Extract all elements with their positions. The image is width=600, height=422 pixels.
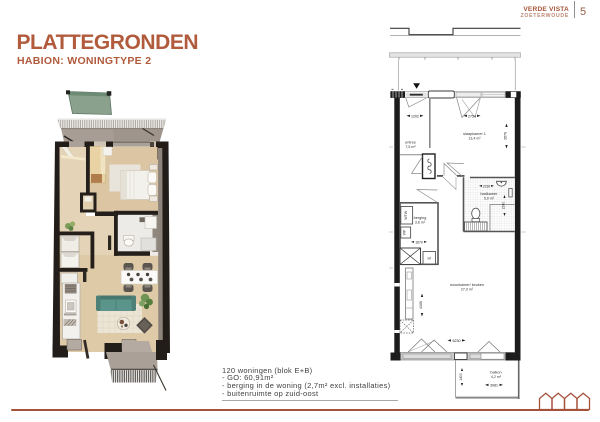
svg-text:WP: WP <box>403 229 407 235</box>
svg-text:27,9 m²: 27,9 m² <box>461 288 474 292</box>
svg-text:1670: 1670 <box>415 241 423 245</box>
svg-text:13,4 m²: 13,4 m² <box>468 137 481 141</box>
svg-text:berging: berging <box>414 216 427 220</box>
svg-text:wf: wf <box>427 257 430 261</box>
svg-text:3,6 m²: 3,6 m² <box>415 221 426 225</box>
svg-text:1400: 1400 <box>459 373 463 381</box>
svg-text:2230: 2230 <box>483 185 491 189</box>
svg-text:2240: 2240 <box>502 202 506 210</box>
svg-text:entree: entree <box>405 141 416 145</box>
svg-text:4,2 m²: 4,2 m² <box>491 375 502 379</box>
svg-text:3081: 3081 <box>490 384 498 388</box>
svg-text:3570: 3570 <box>504 132 508 140</box>
svg-text:WTW: WTW <box>404 210 408 220</box>
svg-text:2754: 2754 <box>468 115 476 119</box>
svg-text:7,5 m²: 7,5 m² <box>405 145 416 149</box>
svg-text:badkamer: badkamer <box>481 192 499 196</box>
svg-text:6230: 6230 <box>453 339 461 343</box>
svg-text:slaapkamer 1: slaapkamer 1 <box>463 132 486 136</box>
svg-text:woonkamer/ keuken: woonkamer/ keuken <box>450 283 484 287</box>
svg-text:5,0 m²: 5,0 m² <box>484 197 495 201</box>
svg-text:balkon: balkon <box>490 371 501 375</box>
svg-text:4100: 4100 <box>419 301 423 309</box>
svg-text:1202: 1202 <box>411 115 419 119</box>
